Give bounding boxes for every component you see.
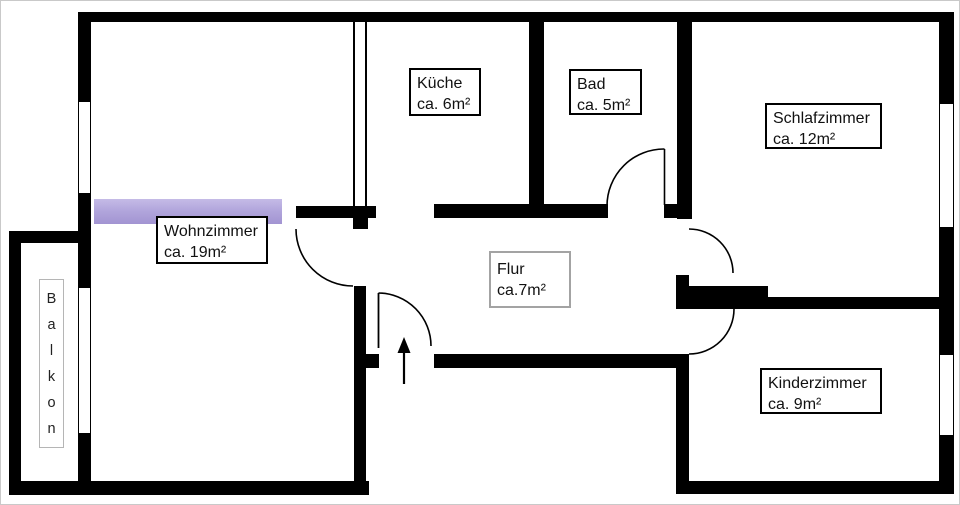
room-area: ca. 12m²	[773, 129, 880, 150]
kinderzimmer-door-swing	[689, 309, 734, 354]
label-kinderzimmer: Kinderzimmer ca. 9m²	[760, 368, 882, 414]
entry-door-swing	[379, 293, 432, 346]
entrance-arrow-head	[398, 337, 411, 353]
room-name: Schlafzimmer	[773, 108, 880, 129]
label-bad: Bad ca. 5m²	[569, 69, 642, 115]
wohnzimmer-door-swing	[296, 229, 353, 286]
label-flur: Flur ca.7m²	[489, 251, 571, 308]
room-area: ca. 5m²	[577, 95, 640, 116]
room-name: Wohnzimmer	[164, 221, 266, 242]
label-kueche: Küche ca. 6m²	[409, 68, 481, 116]
room-area: ca. 6m²	[417, 94, 479, 115]
schlafzimmer-door-swing	[689, 229, 733, 273]
room-name: B a l k o n	[47, 286, 57, 442]
floorplan-canvas: Küche ca. 6m² Bad ca. 5m² Schlafzimmer c…	[0, 0, 960, 505]
room-name: Küche	[417, 73, 479, 94]
room-area: ca.7m²	[497, 280, 569, 301]
label-wohnzimmer: Wohnzimmer ca. 19m²	[156, 216, 268, 264]
bad-door-swing	[607, 149, 665, 206]
room-name: Flur	[497, 259, 569, 280]
room-name: Bad	[577, 74, 640, 95]
label-balkon: B a l k o n	[39, 279, 64, 448]
room-area: ca. 9m²	[768, 394, 880, 415]
room-name: Kinderzimmer	[768, 373, 880, 394]
label-schlafzimmer: Schlafzimmer ca. 12m²	[765, 103, 882, 149]
room-area: ca. 19m²	[164, 242, 266, 263]
